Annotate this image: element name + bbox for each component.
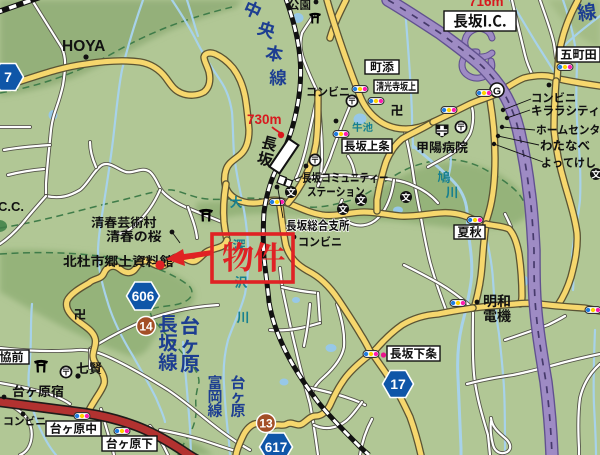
svg-text:C.C.: C.C. bbox=[0, 199, 24, 214]
svg-text:13: 13 bbox=[259, 416, 273, 430]
svg-text:G: G bbox=[493, 86, 501, 98]
svg-text:606: 606 bbox=[132, 289, 155, 304]
svg-text:HOYA: HOYA bbox=[62, 38, 105, 55]
svg-text:17: 17 bbox=[390, 376, 406, 392]
svg-text:7: 7 bbox=[4, 69, 12, 85]
svg-text:730m: 730m bbox=[247, 112, 282, 127]
svg-text:716m: 716m bbox=[469, 0, 504, 9]
svg-text:14: 14 bbox=[139, 319, 153, 333]
svg-text:617: 617 bbox=[265, 440, 288, 455]
